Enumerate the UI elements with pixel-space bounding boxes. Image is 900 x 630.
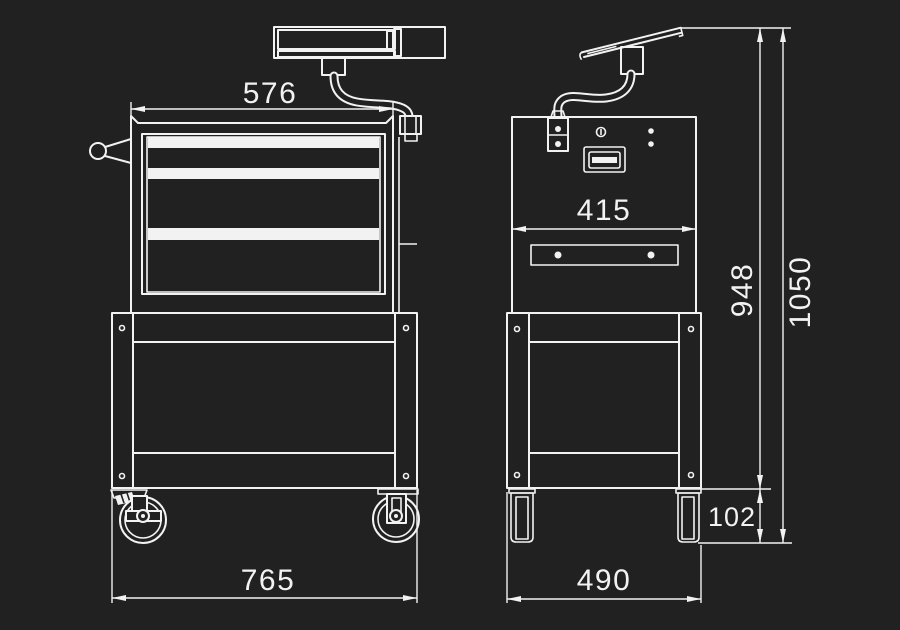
panel-hole — [648, 141, 654, 147]
technical-drawing: 576 765 — [0, 0, 900, 630]
dim-label-415: 415 — [577, 194, 632, 227]
dim-front-top-width: 576 — [131, 77, 393, 115]
screen-left-hook — [579, 52, 583, 59]
mounting-bar — [531, 245, 678, 265]
arm-clamp — [400, 116, 421, 134]
caster-front-left — [111, 490, 166, 543]
caster-side-right — [676, 489, 701, 542]
monitor-housing — [274, 27, 445, 58]
wheel-hub-dot — [394, 514, 398, 518]
push-handle — [90, 139, 131, 163]
bolt-hole — [120, 326, 125, 331]
bolt-hole — [120, 474, 125, 479]
bolt-hole — [515, 473, 520, 478]
handle-bracket-bottom — [105, 156, 131, 163]
clamp-bolt — [555, 141, 561, 147]
base-frame-front — [112, 313, 417, 488]
monitor-front — [274, 27, 445, 58]
monitor-arm-side — [548, 28, 683, 151]
dim-label-490: 490 — [577, 564, 632, 597]
caster-wheel-profile — [682, 497, 694, 539]
handle-bracket-top — [105, 139, 131, 147]
caster-wheel-profile — [516, 497, 528, 539]
dim-side-panel-width: 415 — [512, 194, 696, 229]
bolt-hole — [404, 326, 409, 331]
mounting-bar-bolt — [648, 252, 655, 259]
dim-label-102: 102 — [708, 502, 756, 532]
dim-side-base-width: 490 — [507, 492, 701, 603]
monitor-hinge-inner — [387, 31, 393, 50]
monitor-screen-side — [579, 28, 682, 61]
clamp-bolt — [555, 126, 561, 132]
drawer-rail-mid1 — [148, 168, 379, 179]
caster-side-left — [509, 489, 535, 542]
monitor-arm-front — [322, 58, 421, 313]
side-view: 415 490 — [507, 28, 817, 603]
port-tongue — [592, 157, 617, 163]
drawer-rail-mid2 — [148, 228, 379, 240]
drawer-recess-outer — [142, 134, 385, 294]
caster-front-right — [373, 489, 419, 542]
drawer-rail-top — [148, 137, 379, 148]
base-frame-side — [507, 313, 701, 488]
handle-knob — [90, 143, 106, 159]
base-outline — [507, 313, 701, 488]
drawer-cabinet — [90, 116, 393, 313]
bolt-hole — [689, 473, 694, 478]
dim-label-1050: 1050 — [784, 256, 817, 329]
panel-hole — [648, 128, 654, 134]
base-outline — [112, 313, 417, 488]
drawer-recess-inner — [147, 137, 380, 292]
arm-clamp-screw — [405, 134, 417, 141]
arm-tube-core — [558, 74, 631, 118]
wheel-hub-dot — [141, 514, 145, 518]
front-view: 576 765 — [90, 27, 445, 603]
dim-label-576: 576 — [243, 77, 298, 110]
cabinet-top-edge — [131, 116, 393, 123]
bolt-hole — [515, 327, 520, 332]
screen-bottom-edge — [584, 33, 681, 57]
bolt-hole — [404, 474, 409, 479]
dim-label-948: 948 — [726, 263, 759, 318]
caster-body — [511, 493, 533, 542]
mounting-bar-bolt — [555, 252, 562, 259]
screen-top-edge — [582, 28, 681, 53]
bolt-hole — [689, 327, 694, 332]
monitor-base-strip — [278, 51, 395, 57]
monitor-body — [278, 30, 395, 49]
dim-front-overall-width: 765 — [112, 490, 417, 603]
caster-body — [678, 493, 699, 542]
dim-label-765: 765 — [241, 564, 296, 597]
